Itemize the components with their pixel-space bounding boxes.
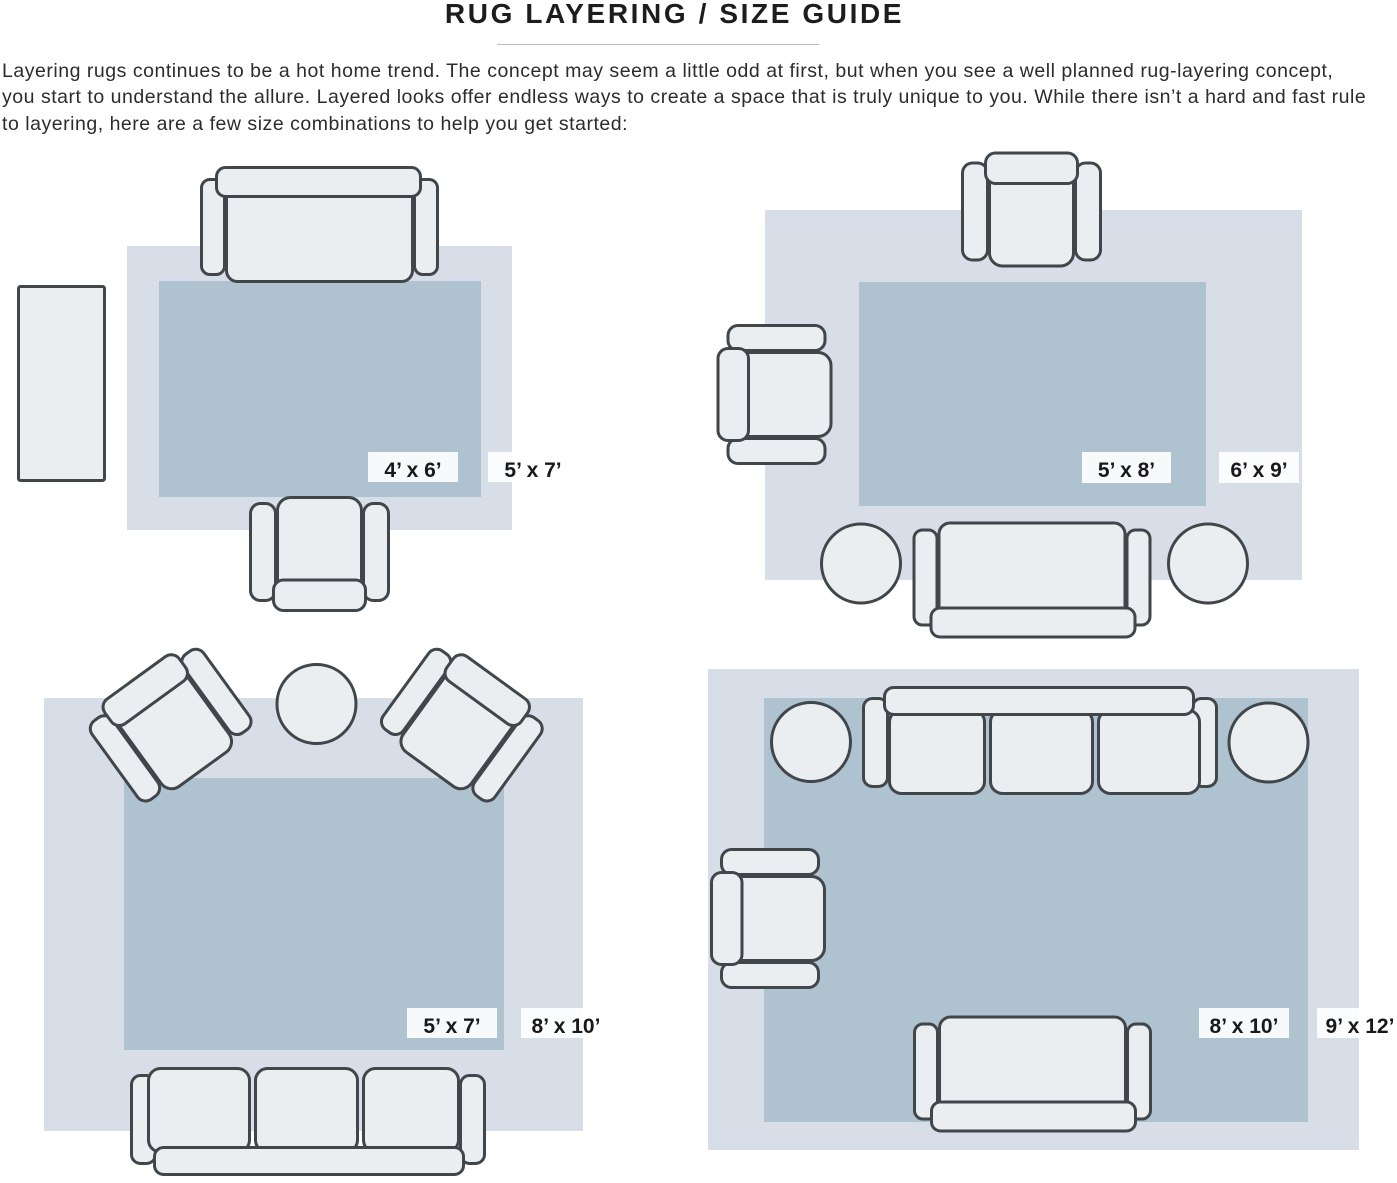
svg-text:5’ x 7’: 5’ x 7’ — [504, 459, 561, 482]
svg-text:8’ x 10’: 8’ x 10’ — [532, 1015, 601, 1038]
svg-text:8’ x 10’: 8’ x 10’ — [1210, 1015, 1279, 1038]
svg-text:9’ x 12’: 9’ x 12’ — [1326, 1015, 1395, 1038]
svg-text:6’ x 9’: 6’ x 9’ — [1230, 459, 1287, 482]
svg-text:5’ x 8’: 5’ x 8’ — [1098, 459, 1155, 482]
svg-text:5’ x 7’: 5’ x 7’ — [423, 1015, 480, 1038]
svg-text:4’ x 6’: 4’ x 6’ — [384, 459, 441, 482]
